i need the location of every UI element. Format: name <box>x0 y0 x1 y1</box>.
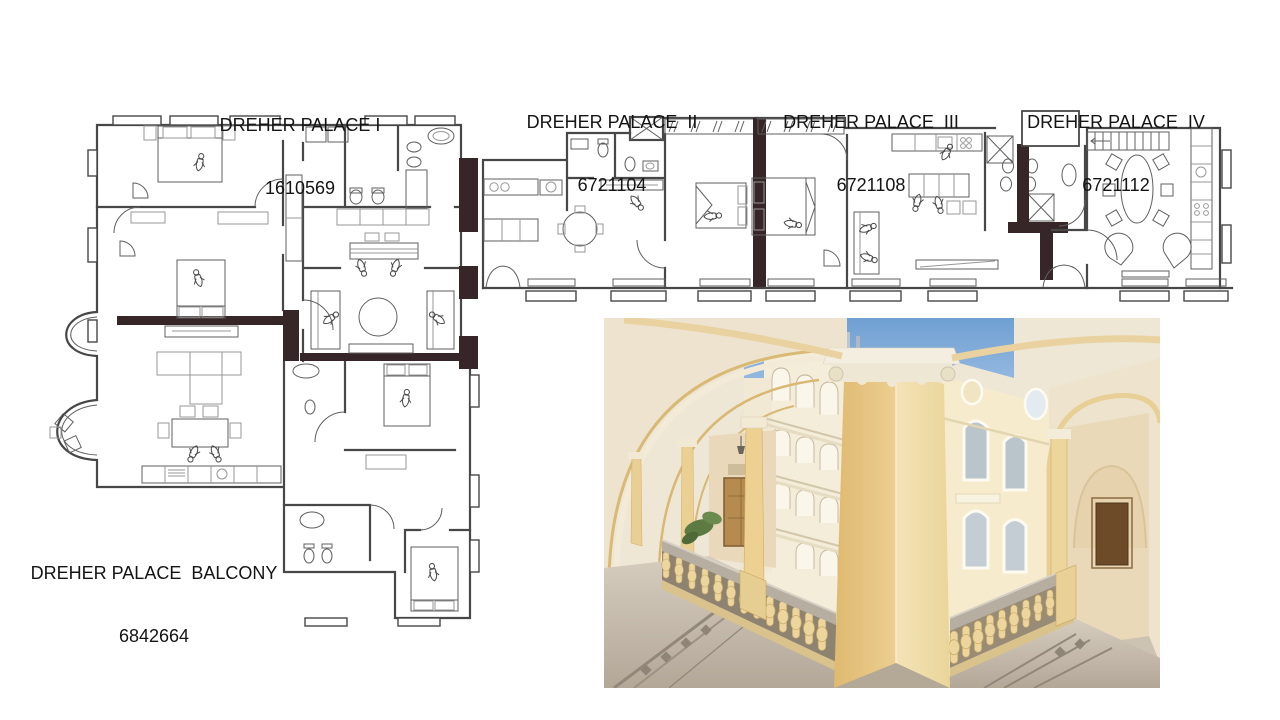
courtyard-photo <box>604 318 1160 688</box>
label-balcony: DREHER PALACE BALCONY 6842664 <box>31 521 278 689</box>
strip-bottom-wall <box>483 279 1232 301</box>
label-palace-3: DREHER PALACE III 6721108 <box>783 70 959 238</box>
label-palace-4: DREHER PALACE IV 6721112 <box>1027 70 1205 238</box>
balcony-title: DREHER PALACE BALCONY <box>31 563 278 584</box>
palace-2-code: 6721104 <box>527 175 698 196</box>
balcony-code: 6842664 <box>31 626 278 647</box>
pillar-capital <box>823 348 960 387</box>
right-corridor-door <box>1096 503 1128 565</box>
label-palace-1: DREHER PALACE I 1610569 <box>220 73 381 241</box>
palace-2-title: DREHER PALACE II <box>527 112 698 133</box>
page: DREHER PALACE I 1610569 DREHER PALACE II… <box>0 0 1280 720</box>
palace-1-title: DREHER PALACE I <box>220 115 381 136</box>
label-palace-2: DREHER PALACE II 6721104 <box>527 70 698 238</box>
palace-4-title: DREHER PALACE IV <box>1027 112 1205 133</box>
palace-1-code: 1610569 <box>220 178 381 199</box>
palace-3-title: DREHER PALACE III <box>783 112 959 133</box>
palace-4-code: 6721112 <box>1027 175 1205 196</box>
palace-3-code: 6721108 <box>783 175 959 196</box>
